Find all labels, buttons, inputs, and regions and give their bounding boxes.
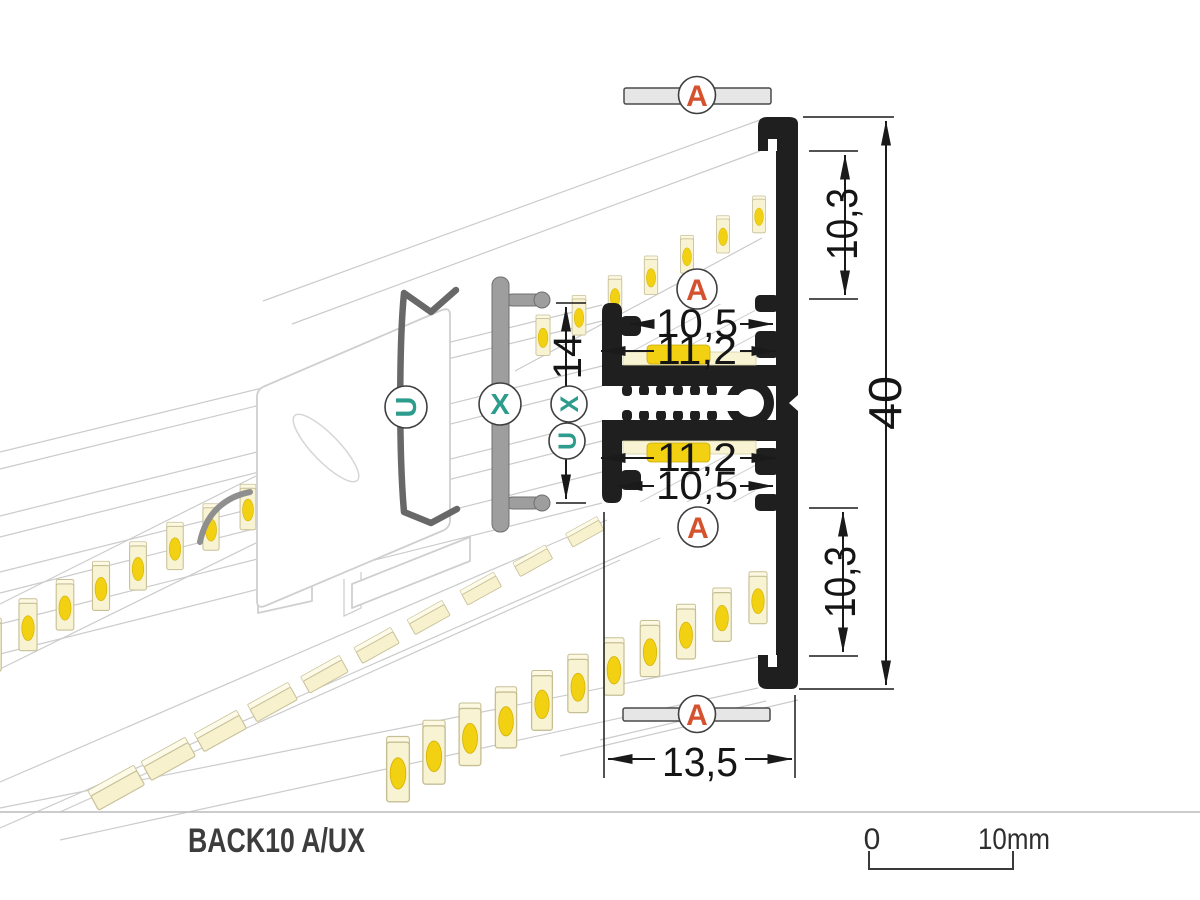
dimension-lower-offset: 10,3 — [816, 546, 865, 618]
led-chip — [301, 655, 349, 693]
led-chip — [644, 256, 657, 295]
scale-bar: 0 10mm — [864, 823, 1050, 869]
led-chip — [387, 737, 410, 802]
technical-drawing-page: A A A A U X 40 10,3 10,3 — [0, 0, 1200, 900]
led-chip — [568, 654, 588, 712]
led-chip — [354, 627, 399, 663]
led-chip — [0, 618, 1, 671]
led-chip — [423, 720, 445, 784]
profile-drawing-canvas: A A A A U X 40 10,3 10,3 — [0, 0, 1200, 900]
led-chip — [513, 545, 553, 577]
led-chip — [713, 588, 732, 641]
led-chip — [459, 703, 481, 766]
marker-letter-a: A — [687, 512, 709, 545]
marker-letter-a: A — [686, 699, 708, 732]
marker-letter-x: X — [556, 395, 584, 412]
dimension-lower-slot-opening: 10,5 — [656, 464, 738, 508]
led-chip — [572, 296, 586, 336]
footer: BACK10 A/UX 0 10mm — [0, 812, 1200, 869]
mounting-bracket-plate — [257, 309, 470, 613]
marker-extrusion-x: X — [479, 383, 521, 425]
dimension-upper-offset: 10,3 — [818, 188, 867, 260]
led-chip — [130, 542, 147, 590]
led-chip — [495, 687, 516, 748]
led-chip — [565, 516, 604, 547]
led-chip — [194, 710, 246, 752]
cover-strip-bottom: A — [623, 696, 770, 733]
dimension-profile-depth: 13,5 — [662, 739, 738, 785]
led-chip — [749, 572, 767, 624]
led-chip — [604, 638, 624, 696]
drawing-title: BACK10 A/UX — [188, 822, 365, 860]
led-chip — [640, 621, 660, 677]
dimension-overall-height: 40 — [859, 376, 911, 430]
led-chip — [753, 196, 766, 233]
led-chip — [92, 561, 109, 610]
led-chip — [717, 216, 730, 253]
led-chip — [532, 671, 553, 731]
led-chip — [460, 572, 502, 605]
scale-zero-label: 0 — [864, 823, 881, 856]
dimension-center-height: 14 — [546, 335, 590, 380]
cover-strip-top: A — [624, 77, 771, 114]
led-chip — [676, 604, 695, 659]
dimension-upper-slot-inner: 11,2 — [657, 329, 737, 373]
led-strip-top-left-segment — [0, 484, 256, 671]
profile-cross-section — [602, 117, 798, 689]
marker-letter-u: U — [554, 432, 582, 450]
led-chip — [680, 236, 693, 274]
marker-letter-u: U — [391, 397, 423, 418]
marker-holder-u: U — [385, 386, 427, 428]
led-chip — [167, 522, 183, 569]
marker-letter-x: X — [490, 389, 510, 421]
led-chip — [56, 580, 74, 631]
led-chip — [88, 765, 145, 810]
marker-letter-a: A — [686, 80, 708, 113]
led-chip — [19, 599, 37, 651]
marker-cover-lower-channel: A — [678, 507, 718, 547]
led-chip — [407, 600, 450, 634]
